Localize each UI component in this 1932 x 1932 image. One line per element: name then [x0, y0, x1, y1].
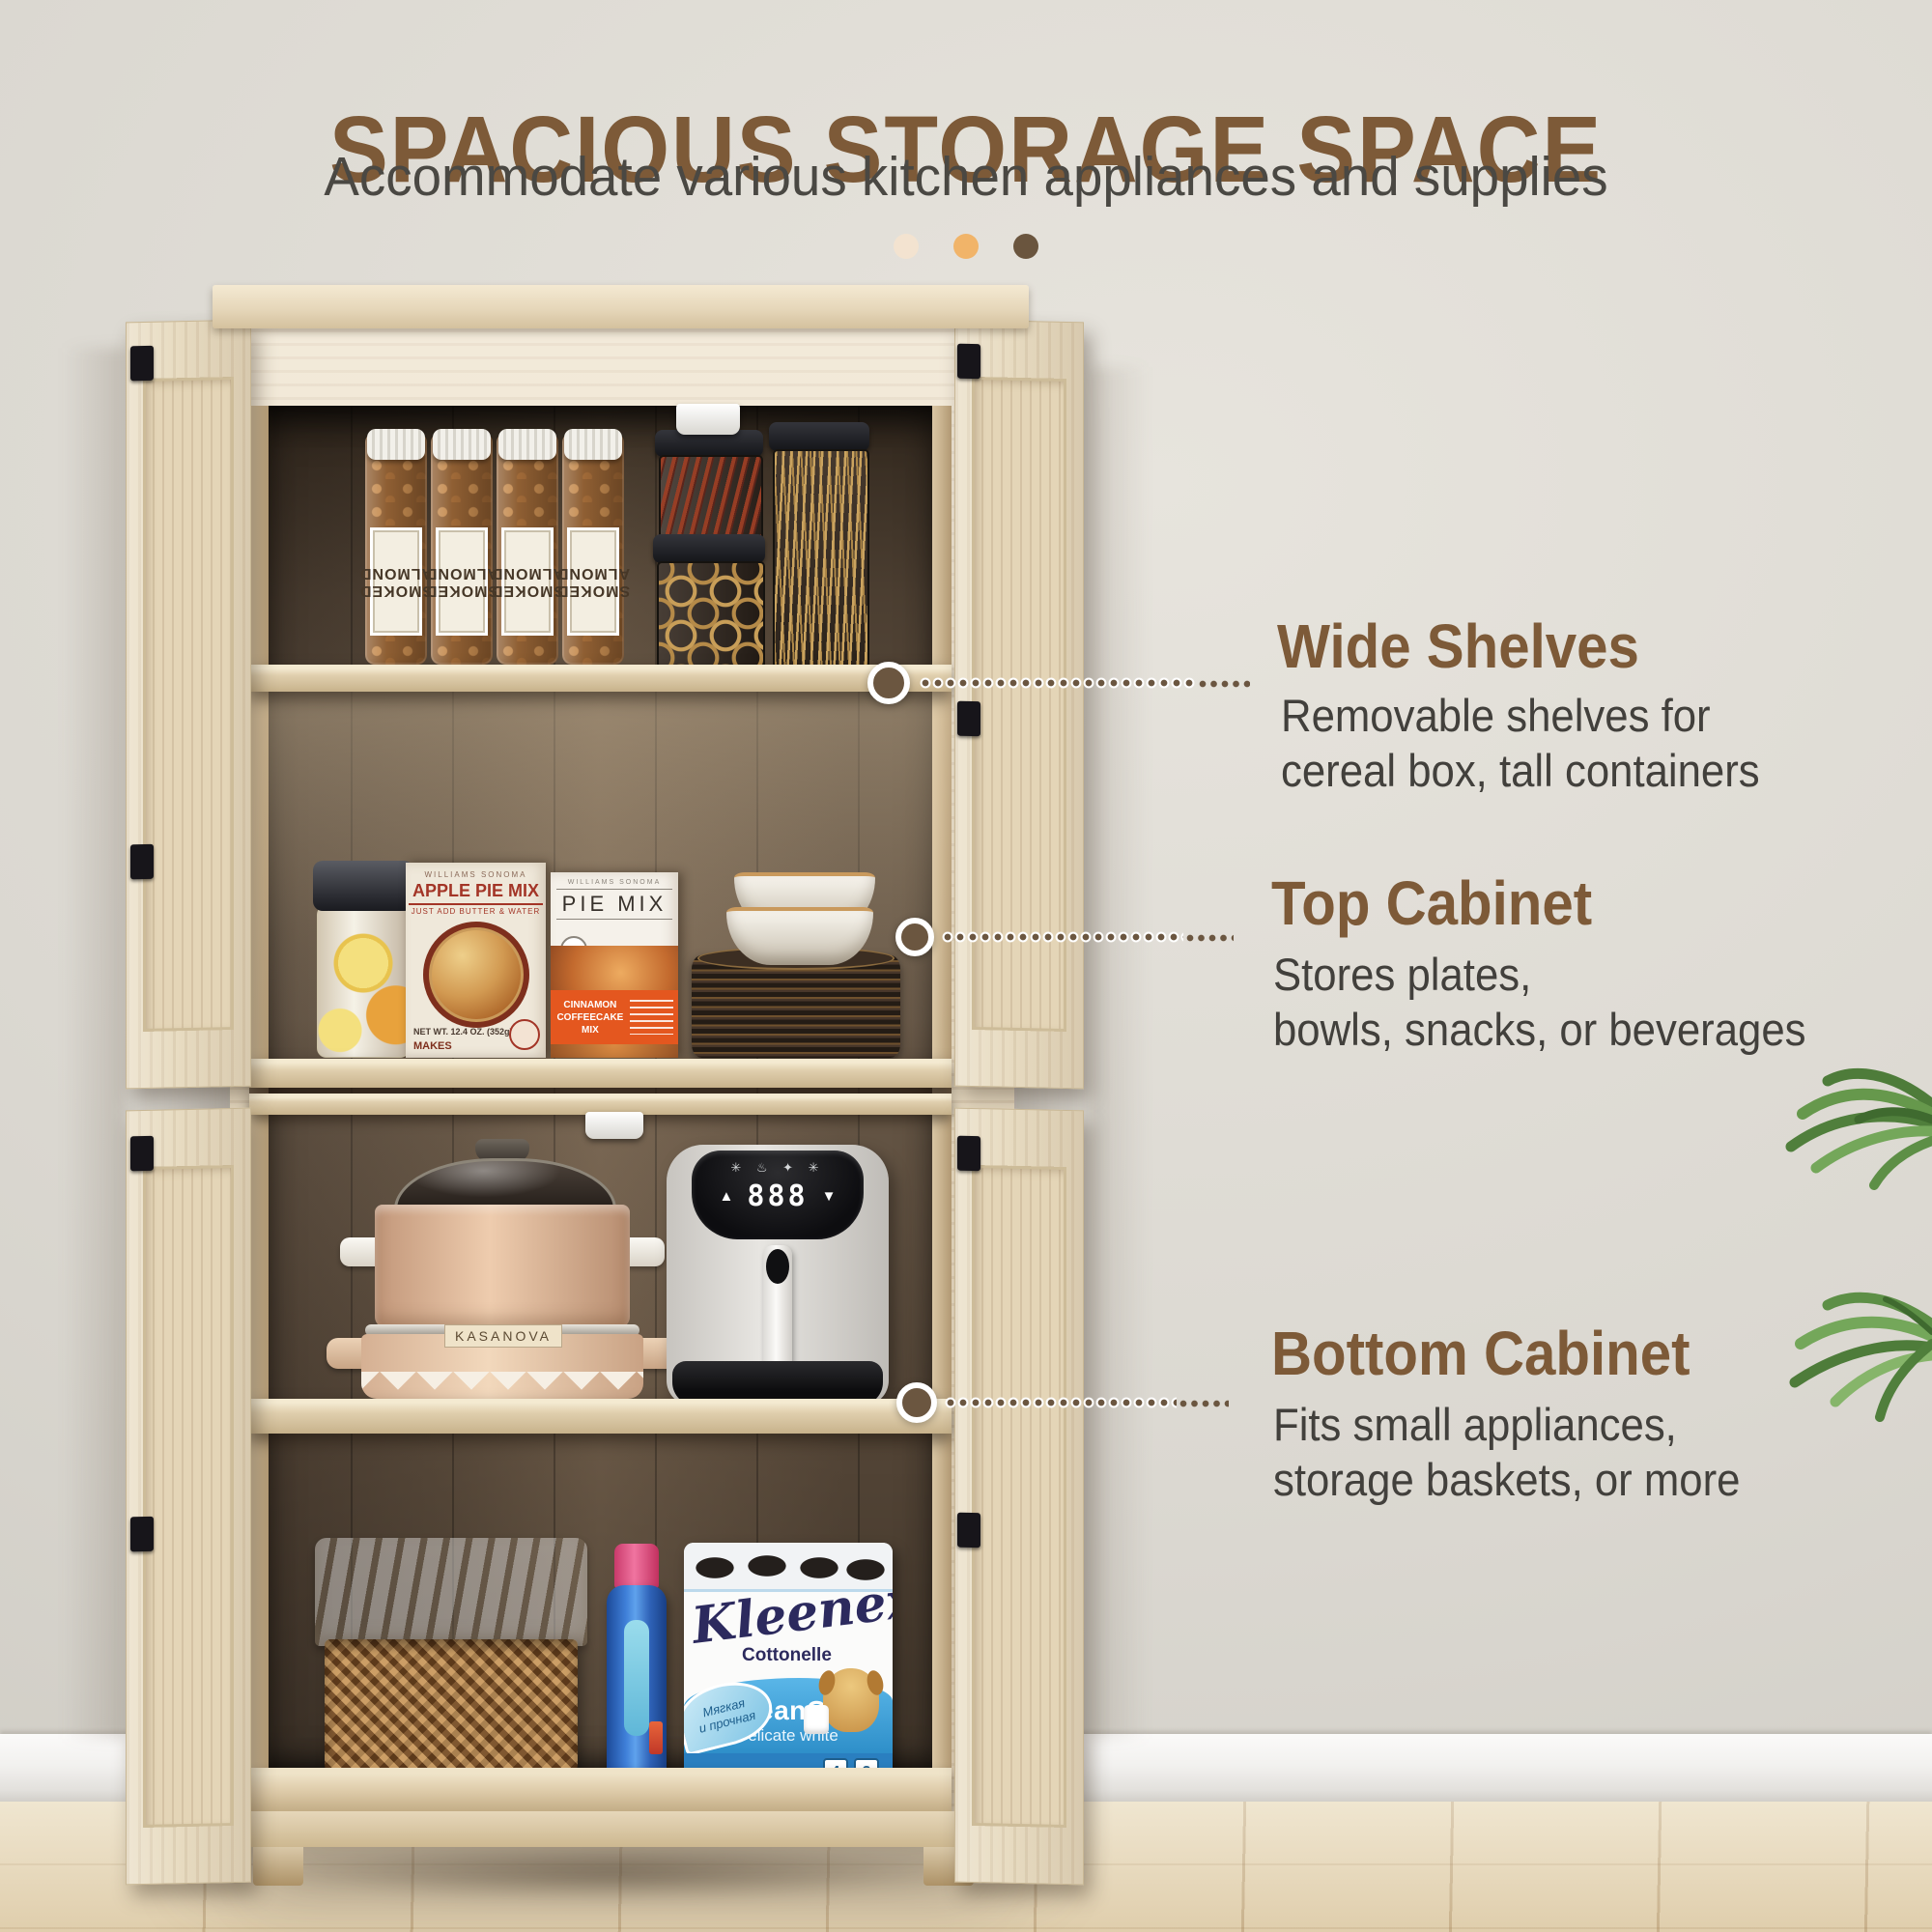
jar-label-line2: ALMOND: [556, 564, 630, 582]
spaghetti-container: [773, 449, 869, 668]
kleenex-pack: Kleenex Cottonelle CleanCare Delicate wh…: [684, 1543, 893, 1787]
door-panel: [143, 1165, 234, 1828]
flavor-band: CINNAMON COFFEECAKE MIX: [551, 990, 678, 1044]
magnetic-catch-top: [676, 404, 740, 435]
magnetic-catch-middle: [585, 1112, 643, 1139]
seal-icon: [509, 1019, 540, 1050]
jar-label: SMOKED ALMOND: [567, 527, 619, 636]
callout-body-wide-shelves: Removable shelves for cereal box, tall c…: [1281, 688, 1760, 798]
cabinet-door-bottom-right: [954, 1108, 1084, 1886]
hinge-icon: [130, 346, 154, 382]
cabinet-crown: [213, 285, 1029, 328]
box-netwt: NET WT. 12.4 OZ. (352g): [413, 1027, 513, 1037]
callout-line: Fits small appliances,: [1273, 1397, 1740, 1452]
callout-title-top-cabinet: Top Cabinet: [1271, 867, 1592, 939]
bowl: [726, 907, 873, 965]
hinge-icon: [130, 844, 154, 880]
almond-jar: SMOKED ALMOND: [365, 433, 427, 665]
jar-label-line2: ALMOND: [359, 564, 433, 582]
jar-label: SMOKED ALMOND: [436, 527, 488, 636]
apple-pie-mix-box: WILLIAMS SONOMA APPLE PIE MIX JUST ADD B…: [406, 863, 546, 1058]
detergent-label: [649, 1721, 663, 1754]
toilet-roll-image: [804, 1705, 829, 1734]
display-digits: 888: [747, 1179, 808, 1213]
detergent-panel: [624, 1620, 649, 1736]
box-name: PIE MIX: [556, 889, 673, 920]
pantry-cabinet: SMOKED ALMOND SMOKED ALMOND SMOKED ALMON…: [116, 285, 1092, 1893]
fine-print: [630, 1000, 673, 1035]
box-tagline: JUST ADD BUTTER & WATER: [406, 907, 546, 916]
leader-line-end: [1185, 933, 1234, 943]
product-infographic: SPACIOUS STORAGE SPACE Accommodate vario…: [0, 0, 1932, 1932]
hinge-icon: [130, 1517, 154, 1552]
jar-label-line1: SMOKED: [359, 582, 433, 599]
leader-line-end: [1179, 1399, 1229, 1408]
accent-dot-cream: [894, 234, 919, 259]
jar-label-line1: SMOKED: [491, 582, 564, 599]
callout-line: Removable shelves for: [1281, 688, 1760, 743]
cabinet-bottom-board: [249, 1768, 952, 1811]
pie-photo: [423, 922, 529, 1028]
basket-body: [325, 1639, 578, 1779]
cabinet-door-top-right: [954, 320, 1084, 1090]
jar-label-line1: SMOKED: [425, 582, 498, 599]
shelf: [249, 665, 952, 692]
flavor-line1: CINNAMON: [551, 999, 630, 1011]
jar-label-line2: ALMOND: [425, 564, 498, 582]
leader-line-bottom-cabinet: [945, 1397, 1177, 1408]
plate-stack: [692, 955, 900, 1058]
down-arrow-icon: ▼: [822, 1189, 837, 1204]
wall-shadow-right: [1090, 367, 1148, 1739]
container-lid: [769, 422, 869, 451]
callout-body-top-cabinet: Stores plates, bowls, snacks, or beverag…: [1273, 947, 1806, 1057]
door-panel: [972, 1165, 1066, 1828]
hinge-icon: [130, 1136, 154, 1172]
jar-label: SMOKED ALMOND: [501, 527, 554, 636]
accent-dots: [0, 234, 1932, 259]
box-name: APPLE PIE MIX: [409, 881, 543, 905]
cabinet-door-top-left: [126, 320, 251, 1090]
flavor-text: CINNAMON COFFEECAKE MIX: [551, 999, 630, 1037]
pot-brand-tag: KASANOVA: [444, 1324, 562, 1348]
pie-mix-box: WILLIAMS SONOMA PIE MIX CINNAMON COFFEEC…: [551, 872, 678, 1058]
callout-title-wide-shelves: Wide Shelves: [1277, 611, 1639, 682]
up-arrow-icon: ▲: [720, 1189, 734, 1204]
box-brand: WILLIAMS SONOMA: [551, 879, 678, 886]
jar-lid: [564, 429, 622, 460]
page-subtitle: Accommodate various kitchen appliances a…: [39, 145, 1893, 209]
jar-label-line2: ALMOND: [491, 564, 564, 582]
basket-liner: [315, 1538, 587, 1646]
accent-dot-orange: [953, 234, 979, 259]
cabinet-divider: [249, 1059, 952, 1088]
shelf: [249, 1399, 952, 1434]
palm-plant-icon: [1747, 1058, 1932, 1502]
door-panel: [143, 377, 234, 1032]
dried-rings-container: [657, 561, 765, 668]
leader-line-top-cabinet: [942, 931, 1183, 943]
air-fryer-icons: ✳ ♨ ✦ ✳: [692, 1160, 864, 1176]
leader-circle-bottom-cabinet: [896, 1382, 937, 1423]
callout-line: bowls, snacks, or beverages: [1273, 1002, 1806, 1057]
kleenex-subbrand: Cottonelle: [742, 1645, 832, 1666]
box-brand: WILLIAMS SONOMA: [406, 870, 546, 879]
air-fryer-display: ▲ 888 ▼: [692, 1179, 864, 1213]
food-canister: [317, 905, 410, 1058]
callout-line: storage baskets, or more: [1273, 1452, 1740, 1507]
jar-lid: [498, 429, 556, 460]
leader-circle-wide-shelves: [867, 662, 910, 704]
detergent-cap: [614, 1544, 659, 1588]
puppy-image: [823, 1668, 879, 1732]
detergent-body: [607, 1585, 667, 1779]
jar-label-line1: SMOKED: [556, 582, 630, 599]
accent-dot-brown: [1013, 234, 1038, 259]
flavor-line2: COFFEECAKE MIX: [551, 1011, 630, 1037]
jar-lid: [367, 429, 425, 460]
cinnamon-sticks-container: [659, 455, 763, 540]
callout-line: cereal box, tall containers: [1281, 743, 1760, 798]
jar-lid: [433, 429, 491, 460]
container-lid: [653, 534, 765, 563]
hinge-icon: [957, 344, 980, 380]
hinge-icon: [957, 1136, 980, 1172]
cabinet-door-bottom-left: [126, 1108, 251, 1886]
air-fryer: ✳ ♨ ✦ ✳ ▲ 888 ▼: [667, 1145, 889, 1406]
leader-line-end: [1198, 679, 1250, 689]
cabinet-leg-left: [253, 1847, 303, 1886]
canister-lid: [313, 861, 413, 911]
air-fryer-panel: ✳ ♨ ✦ ✳ ▲ 888 ▼: [692, 1151, 864, 1239]
almond-jar: SMOKED ALMOND: [431, 433, 493, 665]
leader-line-wide-shelves: [920, 677, 1196, 689]
pot-upper-body: [375, 1205, 630, 1328]
callout-line: Stores plates,: [1273, 947, 1806, 1002]
leader-circle-top-cabinet: [895, 918, 934, 956]
air-fryer-handle-grip: [766, 1249, 789, 1284]
almond-jar: SMOKED ALMOND: [497, 433, 558, 665]
hinge-icon: [957, 701, 980, 737]
hinge-icon: [957, 1513, 980, 1548]
callout-title-bottom-cabinet: Bottom Cabinet: [1271, 1318, 1690, 1389]
box-makes: MAKES: [413, 1040, 452, 1052]
jar-label: SMOKED ALMOND: [370, 527, 422, 636]
almond-jar: SMOKED ALMOND: [562, 433, 624, 665]
callout-body-bottom-cabinet: Fits small appliances, storage baskets, …: [1273, 1397, 1740, 1507]
cabinet-plinth: [230, 1811, 1014, 1847]
box-photo-bottom: [551, 1044, 678, 1058]
